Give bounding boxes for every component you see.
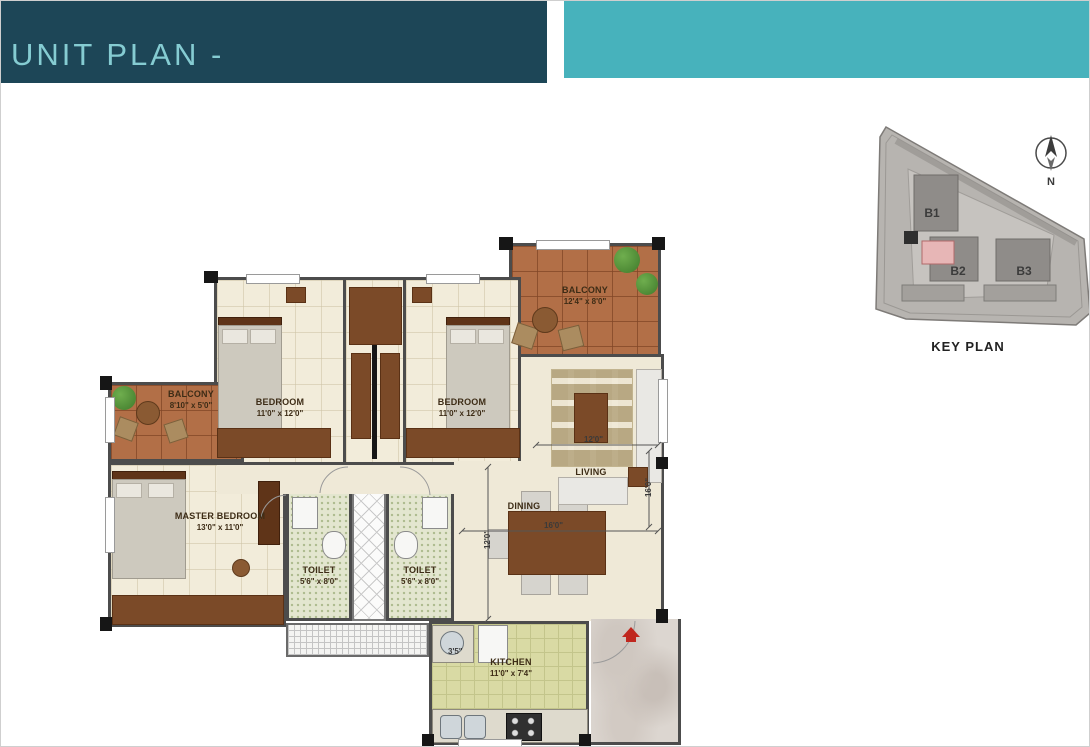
dim-dining-depth: 12'0" — [483, 530, 492, 549]
window — [105, 397, 115, 443]
key-plan-block-b3: B3 — [1016, 264, 1032, 278]
bed-pillow — [116, 483, 142, 498]
key-plan-block-b2: B2 — [950, 264, 966, 278]
unit-plan-page: UNIT PLAN - — [0, 0, 1090, 747]
room-corridor — [217, 465, 457, 494]
plant — [112, 386, 136, 410]
label-toilet-2: TOILET 5'6" x 8'0" — [386, 565, 454, 587]
label-dining: DINING — [474, 501, 574, 513]
partition-wall — [372, 345, 377, 459]
plant — [614, 247, 640, 273]
wardrobe — [406, 428, 520, 458]
key-plan-block-b1: B1 — [924, 206, 940, 220]
patio-table — [532, 307, 558, 333]
window — [536, 240, 610, 250]
washbasin — [422, 497, 448, 529]
entry-arrow-icon — [626, 636, 636, 642]
wall-column — [422, 734, 434, 747]
key-plan-title: KEY PLAN — [931, 339, 1005, 354]
window — [105, 497, 115, 553]
header-bar-dark: UNIT PLAN - — [1, 1, 547, 83]
wardrobe — [217, 428, 331, 458]
wardrobe — [112, 595, 284, 625]
label-toilet-1: TOILET 5'6" x 8'0" — [286, 565, 352, 587]
window — [458, 739, 522, 747]
wall-column — [100, 376, 112, 390]
wall-column — [656, 609, 668, 623]
room-utility-deck — [286, 623, 429, 657]
bed-pillow — [222, 329, 248, 344]
label-living: LIVING — [541, 467, 641, 479]
header-bar-teal — [564, 1, 1090, 78]
dining-chair — [521, 573, 551, 595]
key-plan: B1 B2 B3 N KEY PLAN — [846, 113, 1090, 365]
compass-icon — [1036, 135, 1066, 171]
room-shaft — [352, 491, 386, 621]
bed-pillow — [250, 329, 276, 344]
window — [658, 379, 668, 443]
washbasin — [292, 497, 318, 529]
dim-kitchen-clearance: 3'5" — [448, 647, 463, 656]
wall-column — [652, 237, 665, 250]
label-master-bedroom: MASTER BEDROOM 13'0" x 11'0" — [154, 511, 286, 533]
wall-column — [499, 237, 513, 250]
wall-column — [656, 457, 668, 469]
room-foyer — [591, 619, 681, 745]
side-table — [286, 287, 306, 303]
cabinet — [380, 353, 400, 439]
gas-stove — [506, 713, 542, 741]
dim-living-side: 16'0" — [644, 478, 653, 497]
wall-column — [204, 271, 218, 283]
label-balcony-top: BALCONY 12'4" x 8'0" — [509, 285, 661, 307]
stool — [232, 559, 250, 577]
wall-column — [100, 617, 112, 631]
page-title: UNIT PLAN - — [11, 37, 224, 73]
dim-dining-width: 16'0" — [544, 521, 563, 530]
study-desk — [349, 287, 402, 345]
kitchen-sink — [464, 715, 486, 739]
label-balcony-left: BALCONY 8'10" x 5'0" — [138, 389, 244, 411]
bed-pillow — [478, 329, 504, 344]
label-bedroom-2: BEDROOM 11'0" x 12'0" — [403, 397, 521, 419]
label-kitchen: KITCHEN 11'0" x 7'4" — [451, 657, 571, 679]
key-plan-drawing: B1 B2 B3 N KEY PLAN — [846, 113, 1090, 365]
dining-chair — [558, 573, 588, 595]
compass-label: N — [1047, 176, 1055, 188]
kitchen-sink — [440, 715, 462, 739]
cabinet — [351, 353, 371, 439]
floor-plan: BALCONY 12'4" x 8'0" BEDROOM 11'0" x 12'… — [96, 229, 688, 747]
bed-pillow — [450, 329, 476, 344]
bed-pillow — [148, 483, 174, 498]
key-plan-highlight-unit — [922, 241, 954, 264]
toilet-wc — [394, 531, 418, 559]
side-table — [412, 287, 432, 303]
wall-column — [579, 734, 591, 747]
dim-living-width: 12'0" — [584, 435, 603, 444]
window — [246, 274, 300, 284]
toilet-wc — [322, 531, 346, 559]
window — [426, 274, 480, 284]
